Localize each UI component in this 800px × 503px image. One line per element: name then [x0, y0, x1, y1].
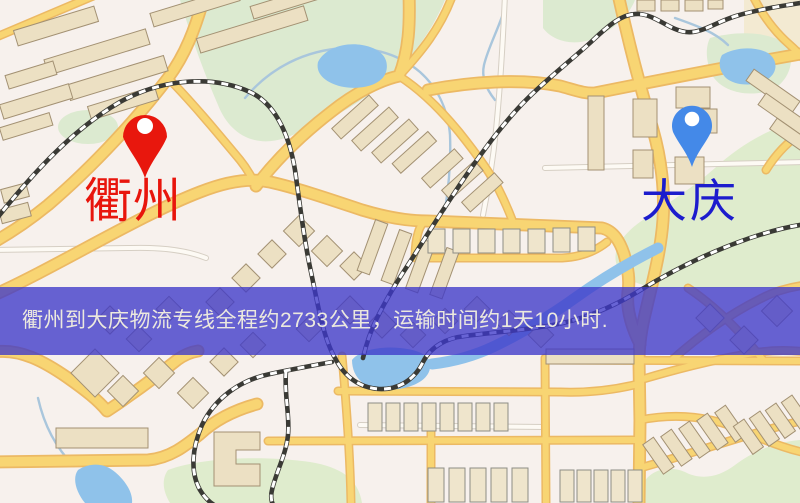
destination-city-label: 大庆	[641, 179, 739, 225]
route-info-banner: 衢州到大庆物流专线全程约2733公里，运输时间约1天10小时.	[0, 287, 800, 355]
origin-city-label: 衢州	[84, 178, 182, 226]
route-info-text: 衢州到大庆物流专线全程约2733公里，运输时间约1天10小时.	[22, 287, 608, 355]
map-screenshot: 衢州 大庆 衢州到大庆物流专线全程约2733公里，运输时间约1天10小时.	[0, 0, 800, 503]
map-image	[0, 0, 800, 503]
